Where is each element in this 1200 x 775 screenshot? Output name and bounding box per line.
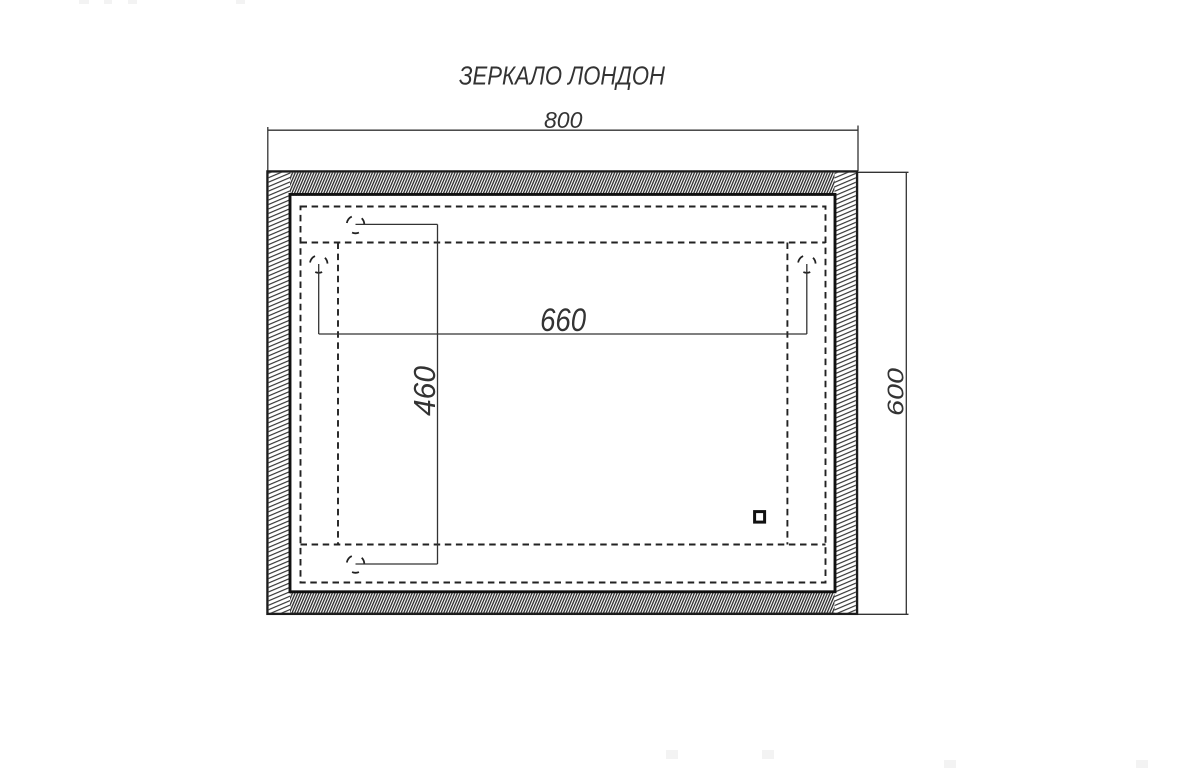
svg-text:800: 800 xyxy=(544,107,583,133)
svg-text:460: 460 xyxy=(408,366,442,416)
svg-text:600: 600 xyxy=(883,368,909,416)
svg-text:ЗЕРКАЛО ЛОНДОН: ЗЕРКАЛО ЛОНДОН xyxy=(459,60,665,90)
svg-text:660: 660 xyxy=(540,302,586,338)
